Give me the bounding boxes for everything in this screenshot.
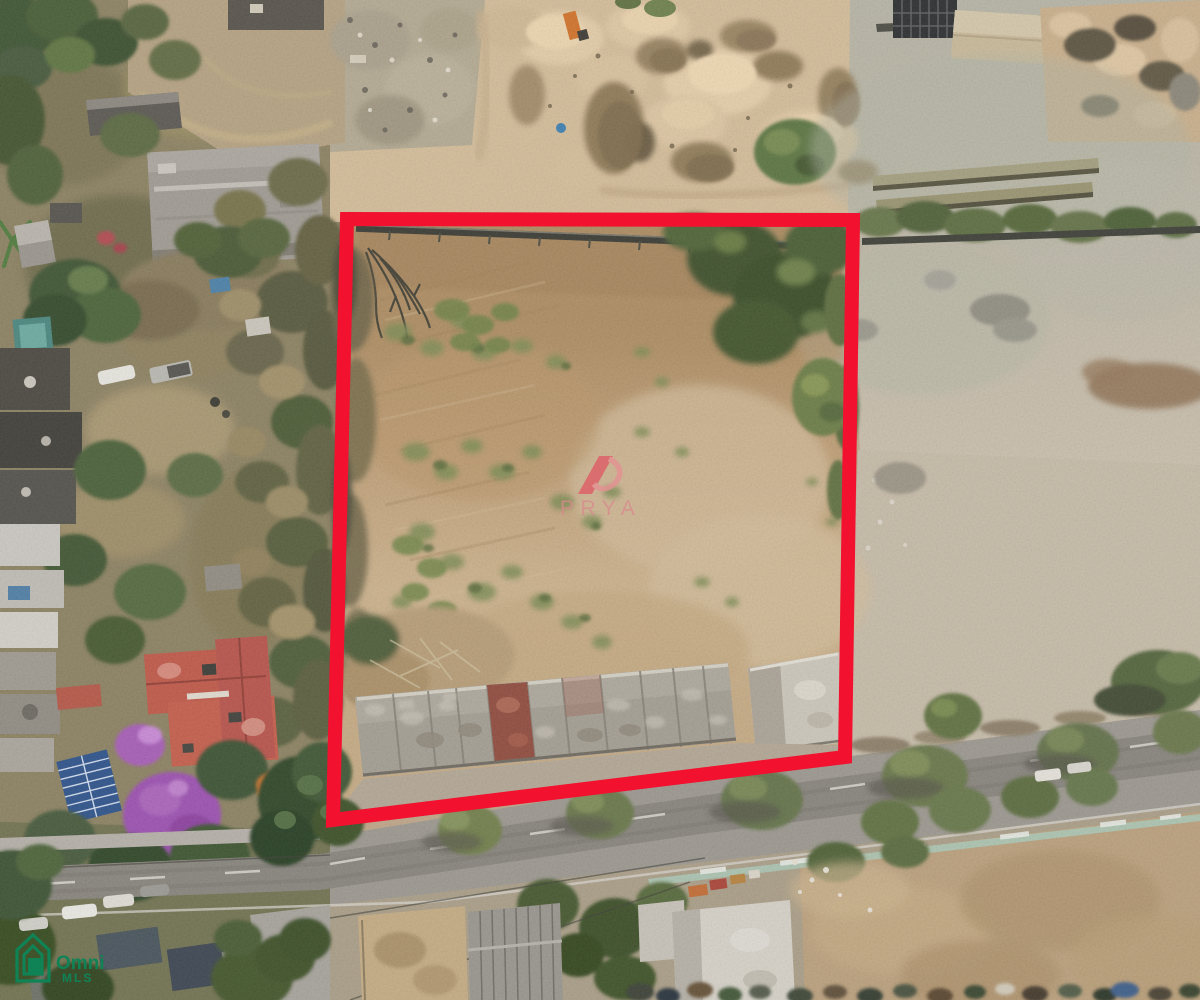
svg-text:PRYA: PRYA	[560, 497, 641, 520]
svg-text:MLS: MLS	[62, 971, 93, 985]
